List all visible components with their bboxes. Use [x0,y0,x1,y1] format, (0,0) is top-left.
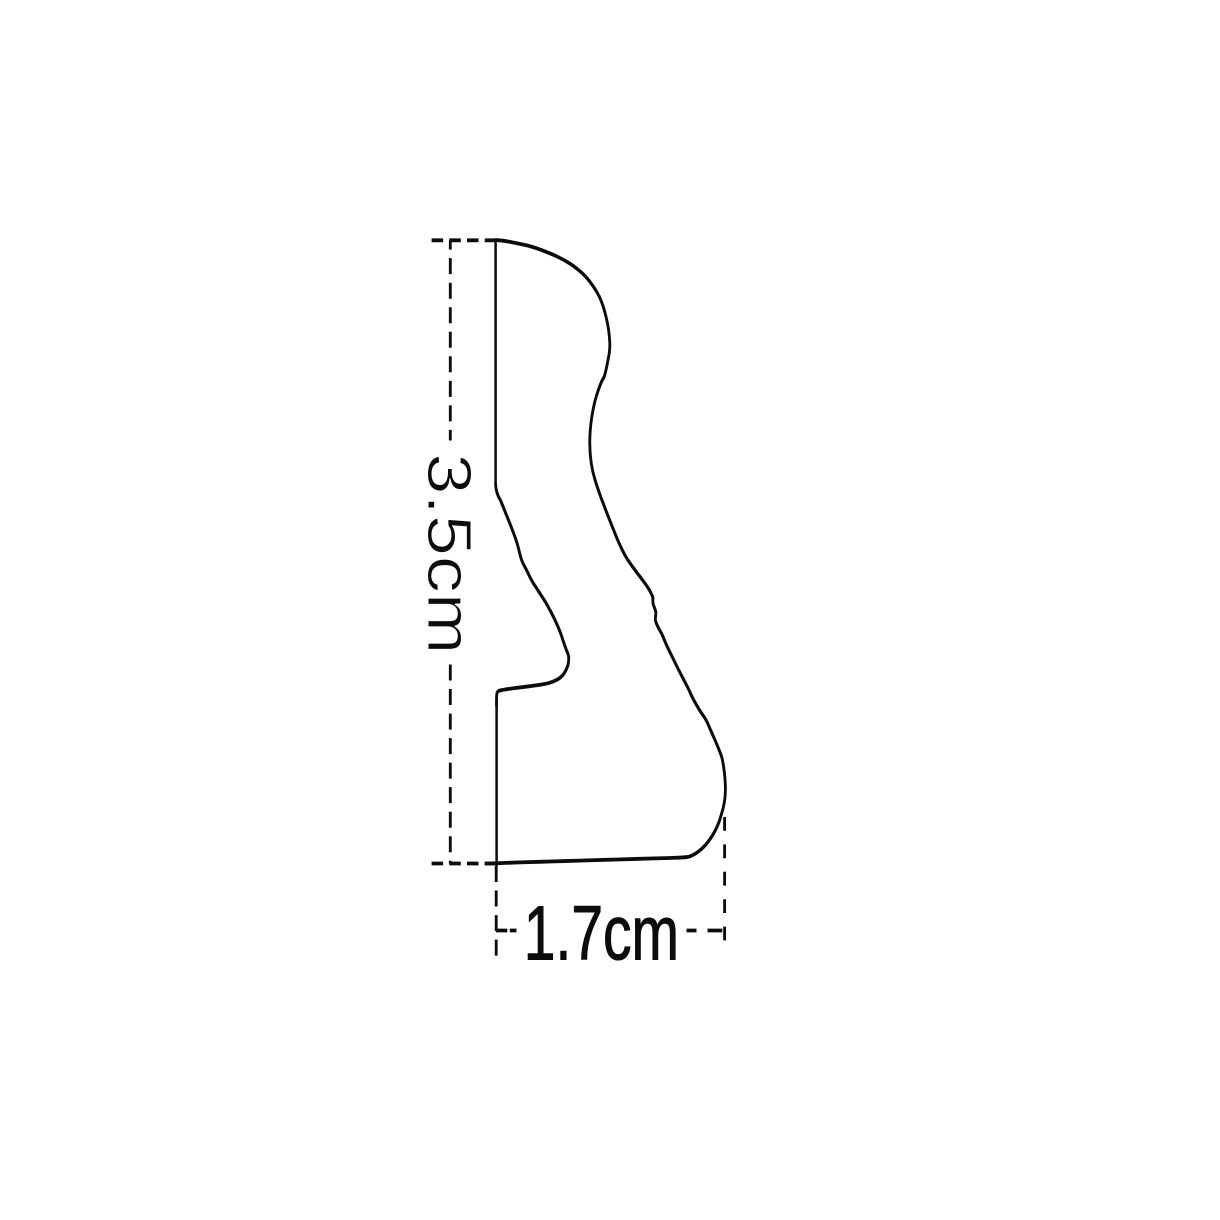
svg-text:3.5cm: 3.5cm [414,453,483,654]
svg-text:1.7cm: 1.7cm [524,891,679,976]
